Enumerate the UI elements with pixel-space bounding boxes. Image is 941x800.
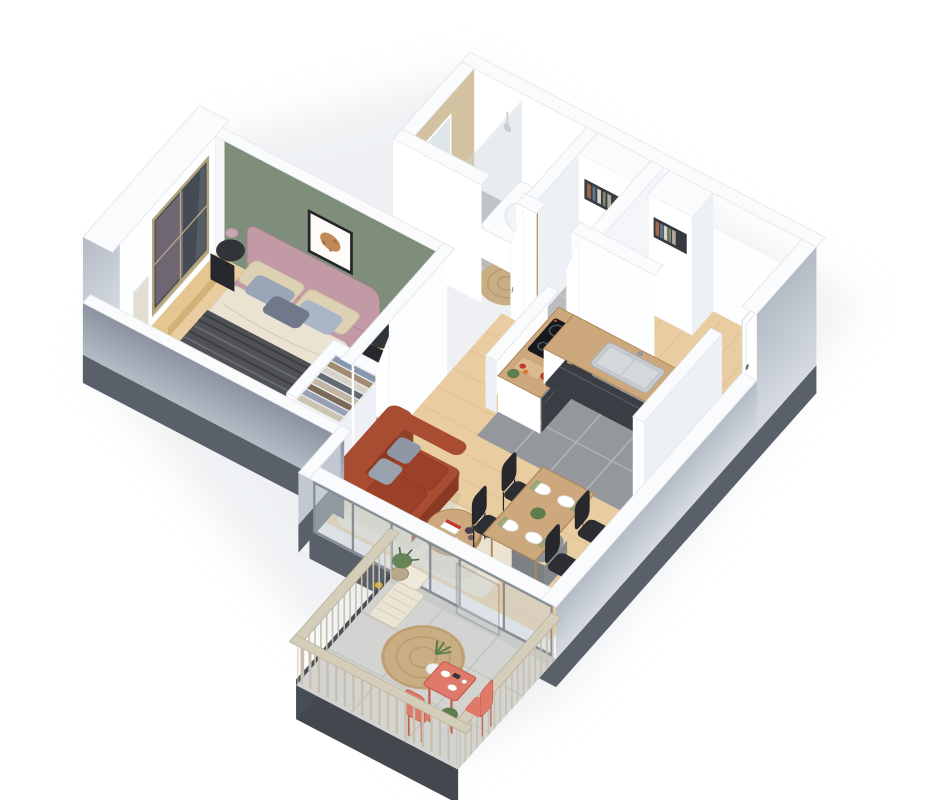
floor-plan-page: 3D isometric floor plan render of a one-… <box>0 0 941 800</box>
floor-plan-render: 3D isometric floor plan render of a one-… <box>0 0 941 800</box>
hall-closet <box>648 170 713 335</box>
